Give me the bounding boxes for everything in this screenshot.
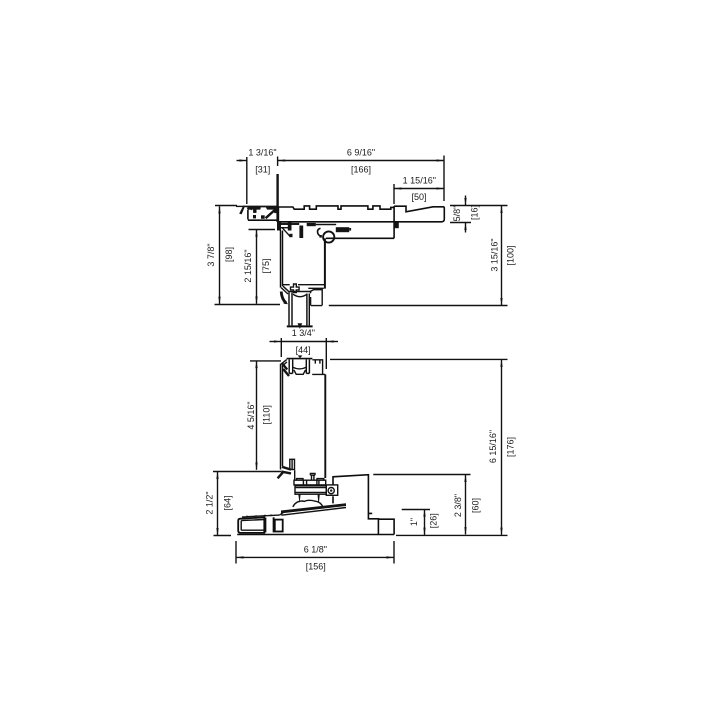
svg-text:[64]: [64] <box>223 495 233 510</box>
svg-text:4 5/16": 4 5/16" <box>246 401 256 429</box>
svg-text:[50]: [50] <box>411 192 426 202</box>
svg-text:[176]: [176] <box>506 437 516 457</box>
svg-text:[100]: [100] <box>506 245 516 265</box>
svg-text:[110]: [110] <box>262 405 272 424</box>
svg-text:6 1/8": 6 1/8" <box>304 545 327 555</box>
svg-text:3 7/8": 3 7/8" <box>206 243 216 266</box>
svg-text:2 15/16": 2 15/16" <box>243 249 253 282</box>
svg-text:1 3/4": 1 3/4" <box>292 328 315 338</box>
svg-text:5/8": 5/8" <box>452 206 462 222</box>
svg-text:2 1/2": 2 1/2" <box>205 491 215 514</box>
svg-text:2 3/8": 2 3/8" <box>453 494 463 517</box>
svg-text:1": 1" <box>409 518 419 526</box>
svg-text:[60]: [60] <box>471 498 481 513</box>
svg-text:[166]: [166] <box>351 164 371 174</box>
svg-text:6 15/16": 6 15/16" <box>488 430 498 463</box>
svg-text:[75]: [75] <box>261 258 271 273</box>
svg-text:[26]: [26] <box>429 513 439 528</box>
svg-text:[31]: [31] <box>255 165 270 175</box>
svg-text:3 15/16": 3 15/16" <box>490 238 500 271</box>
svg-text:1 3/16": 1 3/16" <box>248 148 276 158</box>
svg-text:[44]: [44] <box>296 345 311 355</box>
svg-text:[16]: [16] <box>470 205 480 220</box>
svg-text:[156]: [156] <box>306 561 326 571</box>
svg-text:1 15/16": 1 15/16" <box>403 176 436 186</box>
svg-text:[98]: [98] <box>224 247 234 262</box>
svg-text:6 9/16": 6 9/16" <box>347 148 375 158</box>
